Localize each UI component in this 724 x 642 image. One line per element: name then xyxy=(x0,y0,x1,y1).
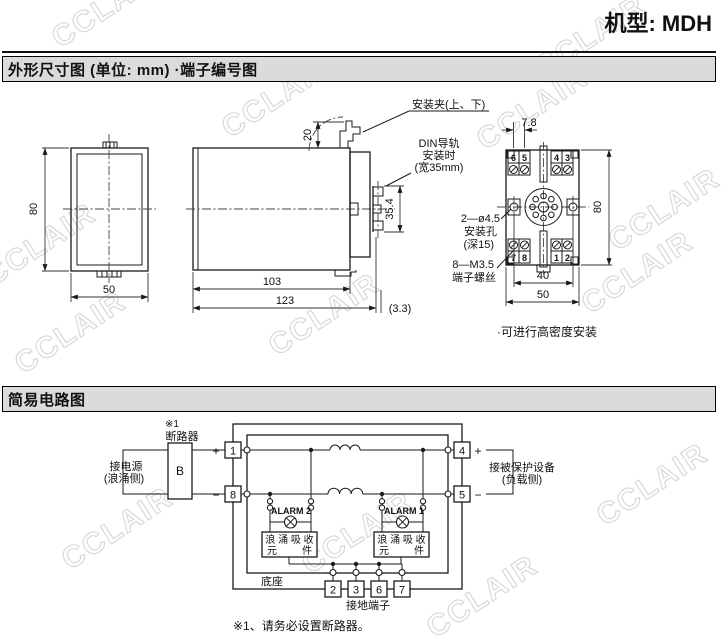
din-label-line3: (宽35mm) xyxy=(415,160,464,174)
front-width-dim: 50 xyxy=(103,284,115,296)
inductor-bottom xyxy=(328,488,363,494)
depth-extra-dim: (3.3) xyxy=(389,303,412,315)
surge-text-el-left: 元 xyxy=(379,546,389,557)
terminal-6-number: 6 xyxy=(376,585,382,597)
terminal-number: 5 xyxy=(522,153,527,163)
source-label-line2: (浪涌侧) xyxy=(104,471,144,485)
screw-label-line2: 端子螺丝 xyxy=(452,271,496,284)
front-view: 80 50 xyxy=(28,134,156,302)
terminal-8-number: 8 xyxy=(230,490,236,502)
depth-body-dim: 103 xyxy=(263,276,281,288)
surge-text-el-right: 件 xyxy=(414,545,424,557)
hole-span-dim: 40 xyxy=(537,270,549,282)
side-view: 20 35.4 103 123 (3.3) 安装夹(上、下) DIN导轨 安装时… xyxy=(186,97,489,315)
page-title: 机型: MDH xyxy=(604,6,712,38)
terminal-2-number: 2 xyxy=(330,585,336,597)
terminal-number: 7 xyxy=(511,253,516,263)
circuit-footnote: ※1、请务必设置断路器。 xyxy=(233,618,370,633)
minus-sign-input: − xyxy=(212,488,219,502)
inductor-top xyxy=(330,445,360,450)
source-label-line1: 接电源 xyxy=(110,459,143,473)
rear-width-dim: 50 xyxy=(537,289,549,301)
din-label-line1: DIN导轨 xyxy=(419,136,460,150)
section-header-circuit-label: 简易电路图 xyxy=(3,389,86,410)
screw-label-line1: 8—M3.5 xyxy=(452,259,494,271)
breaker-symbol: B xyxy=(176,464,184,478)
section-header-dimensions: 外形尺寸图 (单位: mm) ·端子编号图 xyxy=(2,56,716,82)
terminal-5-number: 5 xyxy=(459,490,465,502)
section-header-circuit: 简易电路图 xyxy=(2,386,716,412)
title-divider xyxy=(2,51,716,53)
terminal-number: 2 xyxy=(565,253,570,263)
base-label: 底座 xyxy=(261,574,283,588)
rear-height-dim: 80 xyxy=(592,201,604,213)
terminal-number: 1 xyxy=(554,253,559,263)
mounting-clip-bottom xyxy=(335,270,356,276)
plus-sign-input: + xyxy=(212,444,219,458)
rail-height-dim: 35.4 xyxy=(384,198,396,219)
terminal-4-number: 4 xyxy=(459,446,465,458)
terminal-7-number: 7 xyxy=(399,585,405,597)
ground-bus xyxy=(289,557,405,581)
terminal-number: 4 xyxy=(554,153,559,163)
clip-label: 安装夹(上、下) xyxy=(412,97,485,111)
load-label-line2: (负载侧) xyxy=(502,472,542,486)
terminal-3-number: 3 xyxy=(353,585,359,597)
alarm2-label: ALARM 2 xyxy=(271,506,311,516)
circuit-diagram: B ※1 断路器 接电源 (浪涌侧) xyxy=(104,419,555,633)
technical-drawing-canvas: 80 50 xyxy=(0,0,724,642)
mount-hole-label-line1: 2—ø4.5 xyxy=(461,213,500,225)
terminal-1-number: 1 xyxy=(230,446,236,458)
surge-text-line1: 浪 涌 吸 收 xyxy=(377,533,425,546)
terminal-number: 8 xyxy=(522,253,527,263)
alarm1-label: ALARM 1 xyxy=(384,506,424,516)
surge-text-el-left: 元 xyxy=(267,546,277,557)
terminal-number: 6 xyxy=(511,153,516,163)
ground-terminal-label: 接地端子 xyxy=(346,599,390,612)
minus-sign-output: − xyxy=(474,488,481,502)
plus-sign-output: + xyxy=(474,444,481,458)
rear-view: 6 5 4 3 xyxy=(452,117,612,339)
high-density-note: ·可进行高密度安装 xyxy=(497,324,597,339)
alarm2-module: ALARM 2 浪 涌 吸 收 元 件 xyxy=(262,450,317,557)
alarm1-module: ALARM 1 浪 涌 吸 收 元 件 xyxy=(374,450,429,557)
terminal-number: 3 xyxy=(565,153,570,163)
surge-text-el-right: 件 xyxy=(302,545,312,557)
clip-height-dim: 20 xyxy=(302,129,314,141)
section-header-dimensions-label: 外形尺寸图 (单位: mm) ·端子编号图 xyxy=(3,59,258,80)
front-height-dim: 80 xyxy=(28,203,40,215)
breaker-ref-mark: ※1 xyxy=(165,419,179,430)
datasheet-page: CCLAIR CCLAIR CCLAIR CCLAIR CCLAIR CCLAI… xyxy=(0,0,724,642)
din-label-line2: 安装时 xyxy=(423,148,456,162)
surge-text-line1: 浪 涌 吸 收 xyxy=(265,533,313,546)
depth-total-dim: 123 xyxy=(276,295,294,307)
terminal-pitch-dim: 7.8 xyxy=(521,117,536,129)
load-label-line1: 接被保护设备 xyxy=(489,460,555,474)
mount-hole-label-line3: (深15) xyxy=(463,238,494,251)
mounting-clip-top xyxy=(340,121,360,148)
mount-hole-label-line2: 安装孔 xyxy=(464,224,497,238)
din-rail-profile xyxy=(373,181,383,238)
breaker-label: 断路器 xyxy=(166,429,199,443)
